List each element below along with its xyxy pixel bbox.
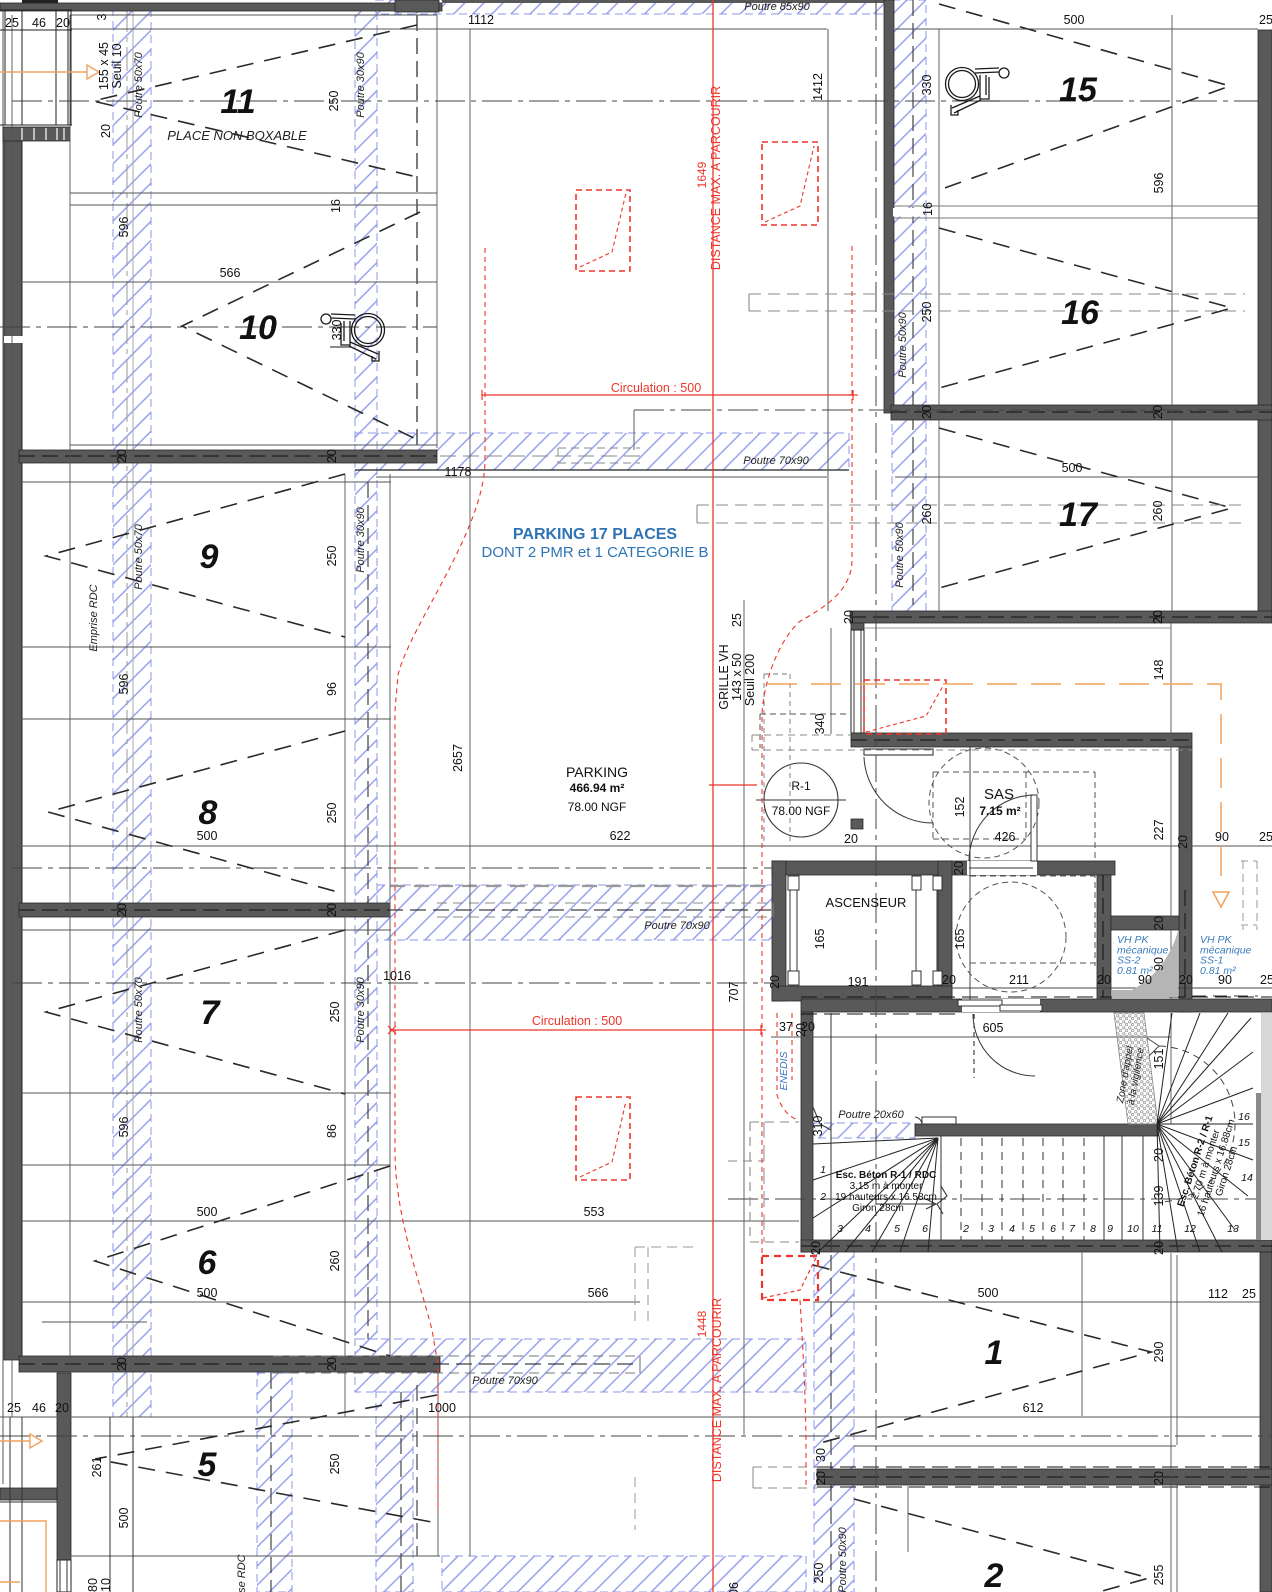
- svg-text:612: 612: [1023, 1401, 1044, 1415]
- svg-text:250: 250: [328, 1002, 342, 1023]
- svg-text:Circulation : 500: Circulation : 500: [532, 1014, 622, 1028]
- svg-text:15: 15: [1059, 71, 1098, 109]
- svg-text:5: 5: [198, 1446, 218, 1484]
- svg-text:20: 20: [325, 449, 339, 463]
- svg-text:9: 9: [1107, 1223, 1113, 1235]
- svg-text:46: 46: [32, 1401, 46, 1415]
- svg-text:10: 10: [239, 309, 277, 347]
- svg-text:Poutre 70x90: Poutre 70x90: [743, 455, 809, 467]
- svg-text:260: 260: [328, 1251, 342, 1272]
- svg-text:11: 11: [220, 83, 255, 121]
- svg-text:596: 596: [117, 674, 131, 695]
- svg-text:9: 9: [200, 538, 219, 576]
- svg-text:13: 13: [1227, 1223, 1239, 1235]
- svg-text:Emprise RDC: Emprise RDC: [88, 584, 100, 651]
- svg-text:16: 16: [329, 199, 343, 213]
- svg-text:553: 553: [584, 1205, 605, 1219]
- svg-text:566: 566: [588, 1286, 609, 1300]
- svg-text:6: 6: [198, 1244, 218, 1282]
- svg-text:20: 20: [768, 975, 782, 989]
- svg-text:426: 426: [995, 830, 1016, 844]
- svg-text:86: 86: [325, 1124, 339, 1138]
- svg-text:06: 06: [727, 1582, 741, 1592]
- svg-text:25: 25: [1259, 830, 1272, 844]
- svg-text:1178: 1178: [445, 465, 472, 479]
- svg-text:152: 152: [953, 797, 967, 818]
- svg-text:566: 566: [220, 266, 241, 280]
- svg-text:605: 605: [983, 1021, 1004, 1035]
- svg-text:90: 90: [1218, 973, 1232, 987]
- svg-text:DISTANCE MAX. A PARCOURIR: DISTANCE MAX. A PARCOURIR: [710, 1298, 724, 1482]
- svg-text:20: 20: [952, 861, 966, 875]
- svg-text:7.15 m²: 7.15 m²: [979, 804, 1020, 818]
- svg-text:90: 90: [1152, 957, 1166, 971]
- svg-text:Circulation : 500: Circulation : 500: [611, 381, 701, 395]
- svg-text:Poutre 30x90: Poutre 30x90: [355, 51, 367, 117]
- svg-text:DONT 2 PMR et 1 CATEGORIE B: DONT 2 PMR et 1 CATEGORIE B: [482, 544, 709, 561]
- svg-text:6: 6: [922, 1223, 928, 1235]
- svg-text:25: 25: [1259, 13, 1272, 27]
- svg-text:Esc. Béton R-1 / RDC: Esc. Béton R-1 / RDC: [836, 1170, 937, 1181]
- svg-text:Poutre 30x90: Poutre 30x90: [355, 976, 367, 1042]
- svg-text:20: 20: [56, 16, 70, 30]
- svg-text:250: 250: [325, 803, 339, 824]
- svg-text:Poutre 50x70: Poutre 50x70: [133, 51, 145, 117]
- svg-text:20: 20: [1151, 610, 1165, 624]
- svg-text:1: 1: [985, 1334, 1004, 1372]
- svg-text:500: 500: [1062, 461, 1083, 475]
- svg-text:165: 165: [953, 929, 967, 950]
- svg-text:GRILLE VH: GRILLE VH: [717, 644, 731, 709]
- svg-text:2: 2: [984, 1557, 1004, 1592]
- svg-text:90: 90: [1215, 830, 1229, 844]
- svg-text:20: 20: [1152, 1148, 1166, 1162]
- svg-text:Giron 28cm: Giron 28cm: [852, 1203, 904, 1214]
- svg-text:20: 20: [99, 124, 113, 138]
- svg-text:250: 250: [812, 1563, 826, 1584]
- svg-text:261: 261: [90, 1457, 104, 1478]
- svg-text:3: 3: [837, 1223, 843, 1235]
- svg-text:500: 500: [197, 829, 218, 843]
- svg-text:4: 4: [1009, 1223, 1015, 1235]
- svg-text:ASCENSEUR: ASCENSEUR: [826, 895, 907, 910]
- svg-text:227: 227: [1152, 820, 1166, 841]
- svg-text:90: 90: [1138, 973, 1152, 987]
- svg-text:2657: 2657: [451, 744, 465, 772]
- svg-text:Poutre 70x90: Poutre 70x90: [644, 920, 710, 932]
- svg-text:10: 10: [99, 1578, 113, 1592]
- svg-text:25: 25: [5, 16, 19, 30]
- svg-text:707: 707: [727, 982, 741, 1003]
- svg-text:20: 20: [814, 1471, 828, 1485]
- svg-text:2: 2: [962, 1223, 969, 1235]
- svg-text:165: 165: [813, 929, 827, 950]
- svg-text:25: 25: [1242, 1287, 1256, 1301]
- svg-text:7: 7: [201, 994, 222, 1032]
- svg-text:3: 3: [95, 13, 109, 20]
- svg-text:Poutre 50x90: Poutre 50x90: [897, 311, 909, 377]
- svg-text:1412: 1412: [811, 73, 825, 101]
- svg-text:16: 16: [1238, 1111, 1250, 1123]
- svg-text:596: 596: [1152, 173, 1166, 194]
- svg-text:5: 5: [1029, 1223, 1035, 1235]
- svg-text:20: 20: [115, 1357, 129, 1371]
- svg-text:SAS: SAS: [984, 786, 1014, 803]
- svg-text:20: 20: [325, 903, 339, 917]
- svg-text:12: 12: [1184, 1223, 1196, 1235]
- svg-text:14: 14: [1241, 1172, 1253, 1184]
- svg-text:10: 10: [1127, 1223, 1139, 1235]
- svg-text:16: 16: [921, 202, 935, 216]
- svg-text:20: 20: [1152, 1241, 1166, 1255]
- svg-text:15: 15: [1238, 1137, 1250, 1149]
- svg-text:PARKING: PARKING: [566, 764, 628, 780]
- svg-text:500: 500: [197, 1205, 218, 1219]
- svg-text:1448: 1448: [695, 1310, 709, 1337]
- svg-text:20: 20: [55, 1401, 69, 1415]
- svg-text:1649: 1649: [695, 161, 709, 188]
- svg-text:20: 20: [844, 832, 858, 846]
- svg-text:20: 20: [1151, 405, 1165, 419]
- svg-text:3: 3: [988, 1223, 994, 1235]
- svg-text:250: 250: [327, 91, 341, 112]
- svg-text:20: 20: [942, 973, 956, 987]
- svg-text:4: 4: [865, 1223, 871, 1235]
- svg-text:500: 500: [978, 1286, 999, 1300]
- svg-text:Seuil 10: Seuil 10: [110, 43, 124, 88]
- svg-text:500: 500: [1064, 13, 1085, 27]
- svg-text:20: 20: [115, 903, 129, 917]
- svg-text:330: 330: [330, 320, 344, 341]
- svg-text:250: 250: [328, 1454, 342, 1475]
- svg-text:6: 6: [1050, 1223, 1056, 1235]
- svg-text:250: 250: [920, 302, 934, 323]
- svg-text:1112: 1112: [468, 13, 494, 27]
- svg-text:78.00 NGF: 78.00 NGF: [568, 800, 627, 814]
- svg-text:Poutre 50x70: Poutre 50x70: [133, 523, 145, 589]
- svg-text:2: 2: [819, 1191, 826, 1203]
- svg-text:596: 596: [117, 1117, 131, 1138]
- svg-text:11: 11: [1152, 1223, 1163, 1235]
- svg-text:330: 330: [920, 75, 934, 96]
- svg-text:310: 310: [811, 1116, 825, 1137]
- svg-text:19 hauteurs x 16.58cm: 19 hauteurs x 16.58cm: [835, 1192, 937, 1203]
- svg-text:Seuil 200: Seuil 200: [743, 654, 757, 706]
- svg-text:148: 148: [1152, 660, 1166, 681]
- svg-text:ENEDIS: ENEDIS: [778, 1051, 790, 1090]
- svg-text:112: 112: [1208, 1287, 1228, 1301]
- svg-text:20: 20: [920, 405, 934, 419]
- svg-text:260: 260: [920, 504, 934, 525]
- svg-text:PARKING 17 PLACES: PARKING 17 PLACES: [513, 526, 678, 543]
- svg-text:500: 500: [117, 1508, 131, 1529]
- svg-text:143 x 50: 143 x 50: [730, 653, 744, 701]
- svg-text:211: 211: [1009, 973, 1029, 987]
- svg-text:20: 20: [1152, 1471, 1166, 1485]
- svg-text:Poutre 85x90: Poutre 85x90: [744, 1, 810, 13]
- svg-text:20: 20: [842, 610, 856, 624]
- svg-text:37: 37: [779, 1020, 793, 1034]
- svg-text:191: 191: [848, 975, 869, 989]
- svg-text:20: 20: [115, 449, 129, 463]
- svg-text:20: 20: [1097, 973, 1111, 987]
- svg-text:20: 20: [325, 1357, 339, 1371]
- svg-text:622: 622: [610, 829, 631, 843]
- svg-text:20: 20: [1152, 916, 1166, 930]
- svg-text:Poutre 50x90: Poutre 50x90: [837, 1526, 849, 1592]
- svg-text:Poutre 50x70: Poutre 50x70: [133, 976, 145, 1042]
- svg-text:Emprise RDC: Emprise RDC: [236, 1554, 248, 1592]
- svg-text:500: 500: [197, 1286, 218, 1300]
- svg-text:8: 8: [199, 794, 218, 832]
- svg-text:DISTANCE MAX. A PARCOURIR: DISTANCE MAX. A PARCOURIR: [709, 86, 723, 270]
- svg-text:R-1: R-1: [791, 779, 811, 793]
- svg-text:466.94 m²: 466.94 m²: [570, 781, 625, 795]
- svg-text:17: 17: [1059, 496, 1099, 534]
- svg-text:78.00 NGF: 78.00 NGF: [772, 804, 831, 818]
- svg-text:20: 20: [809, 1241, 823, 1255]
- svg-text:3.15 m à monter: 3.15 m à monter: [850, 1181, 923, 1192]
- svg-text:1000: 1000: [428, 1401, 456, 1415]
- svg-text:8: 8: [1090, 1223, 1096, 1235]
- svg-text:20: 20: [1176, 835, 1190, 849]
- svg-text:96: 96: [325, 682, 339, 696]
- svg-text:20: 20: [1179, 973, 1193, 987]
- svg-text:1: 1: [820, 1164, 826, 1176]
- svg-text:25: 25: [1260, 973, 1272, 987]
- svg-text:46: 46: [32, 16, 46, 30]
- svg-text:1016: 1016: [383, 969, 411, 983]
- svg-text:255: 255: [1152, 1565, 1166, 1586]
- svg-text:30: 30: [814, 1448, 828, 1462]
- svg-text:596: 596: [117, 217, 131, 238]
- svg-text:139: 139: [1152, 1186, 1166, 1207]
- svg-text:Poutre 50x90: Poutre 50x90: [894, 521, 906, 587]
- svg-text:155 x 45: 155 x 45: [97, 42, 111, 90]
- svg-text:25: 25: [730, 613, 744, 627]
- svg-text:Poutre 20x60: Poutre 20x60: [838, 1109, 904, 1121]
- svg-text:16: 16: [1061, 294, 1100, 332]
- svg-text:25: 25: [7, 1401, 21, 1415]
- svg-text:260: 260: [1151, 501, 1165, 522]
- svg-text:20: 20: [794, 1023, 808, 1037]
- svg-text:80: 80: [86, 1578, 100, 1592]
- svg-text:290: 290: [1152, 1342, 1166, 1363]
- svg-text:Poutre 70x90: Poutre 70x90: [472, 1375, 538, 1387]
- svg-text:340: 340: [813, 714, 827, 735]
- svg-text:PLACE NON BOXABLE: PLACE NON BOXABLE: [167, 128, 307, 143]
- svg-text:250: 250: [325, 546, 339, 567]
- svg-text:Poutre 30x90: Poutre 30x90: [355, 506, 367, 572]
- svg-text:151: 151: [1152, 1049, 1166, 1070]
- svg-text:5: 5: [894, 1223, 900, 1235]
